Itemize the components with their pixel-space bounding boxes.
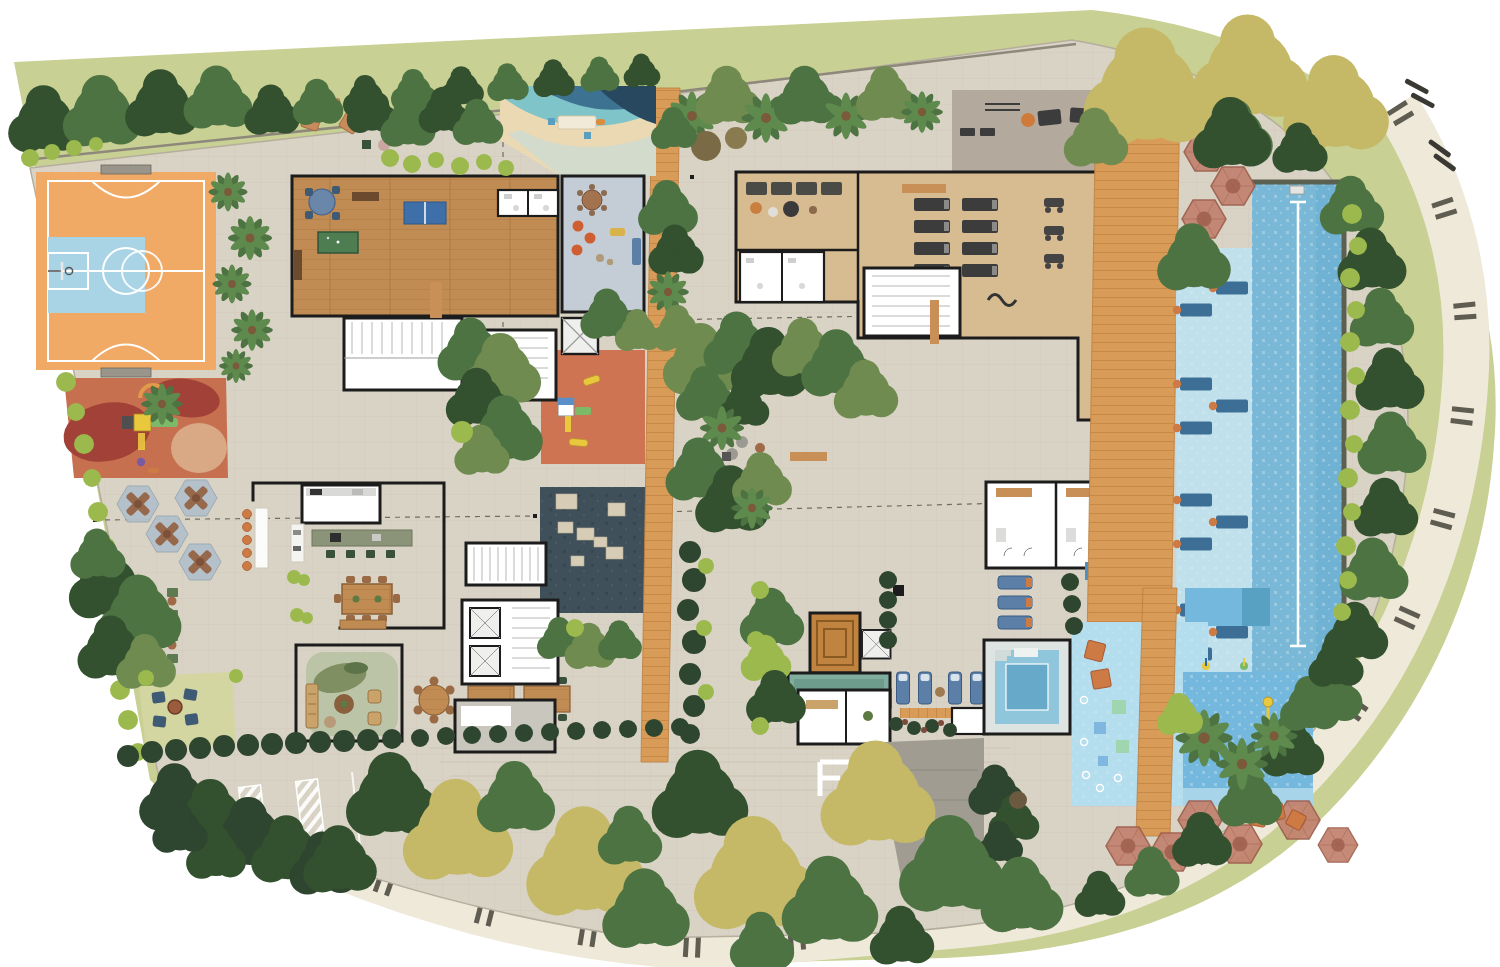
spring-toy bbox=[137, 458, 145, 466]
sports-court bbox=[36, 165, 216, 377]
activity-table bbox=[582, 190, 602, 210]
sofa bbox=[306, 684, 318, 728]
reflecting-pool bbox=[540, 487, 646, 613]
stair-core bbox=[864, 268, 960, 336]
play-tower bbox=[134, 414, 151, 431]
entrance-lobby bbox=[798, 690, 890, 744]
kids-playground bbox=[58, 374, 228, 478]
restrooms bbox=[740, 252, 824, 302]
sideboard bbox=[340, 620, 386, 629]
whirlpool-spa bbox=[984, 640, 1070, 734]
site-plan-canvas: Residential condominium ground-floor imp… bbox=[0, 0, 1500, 967]
goal-bottom bbox=[101, 368, 151, 377]
sauna bbox=[810, 613, 860, 673]
grand-stair bbox=[466, 543, 546, 585]
fire-pit bbox=[168, 700, 182, 714]
playroom-sofa bbox=[632, 238, 641, 265]
goal-top bbox=[101, 165, 151, 174]
gourmet-kitchen bbox=[302, 485, 380, 523]
living-lounge bbox=[296, 645, 402, 741]
courtyard-bench bbox=[930, 300, 939, 344]
bench bbox=[352, 192, 379, 201]
toy-car bbox=[610, 228, 625, 236]
restrooms bbox=[498, 190, 558, 216]
pool-toy bbox=[558, 116, 596, 129]
reception-desk bbox=[806, 700, 838, 709]
gym-bench bbox=[902, 184, 946, 193]
service-rooms bbox=[455, 700, 555, 752]
garden-bench bbox=[790, 452, 827, 461]
site-plan-drawing: Residential condominium ground-floor imp… bbox=[0, 0, 1500, 967]
exercise-ball bbox=[1021, 113, 1035, 127]
